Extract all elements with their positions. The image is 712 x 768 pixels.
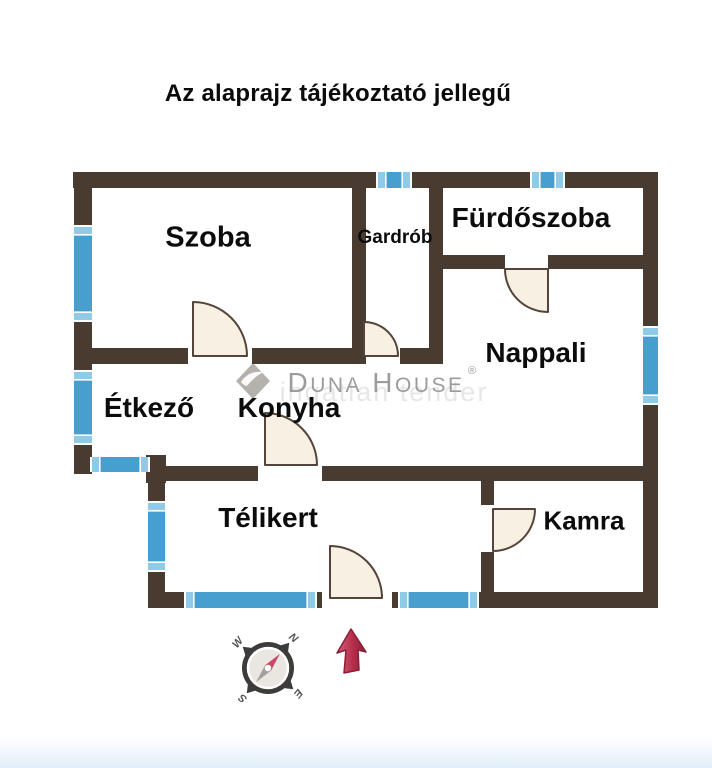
wall-segment (443, 255, 505, 269)
wall-segment (481, 481, 494, 505)
window (74, 225, 92, 322)
north-arrow-icon (337, 629, 366, 673)
window (643, 326, 658, 405)
door-gardrob (364, 322, 398, 356)
room-label-konyha: Konyha (238, 392, 341, 423)
wall-segment (548, 255, 643, 269)
wall-segment (74, 443, 92, 474)
page-bottom-tint (0, 738, 712, 768)
wall-segment (148, 592, 186, 608)
compass-icon: NESW (230, 631, 305, 705)
door-telikert (330, 546, 382, 598)
doors-layer (193, 269, 548, 598)
window (376, 172, 412, 188)
wall-segment (166, 466, 258, 481)
wall-segment (643, 403, 658, 608)
watermark-registered-mark: ® (468, 365, 476, 377)
room-label-nappali: Nappali (485, 337, 586, 368)
room-label-furdoszoba: Fürdőszoba (452, 202, 611, 233)
wall-segment (429, 188, 443, 364)
room-label-telikert: Télikert (218, 502, 318, 533)
wall-segment (74, 172, 92, 227)
room-label-etkezo: Étkező (104, 392, 194, 423)
room-label-gardrob: Gardrób (358, 227, 433, 248)
window (148, 501, 165, 572)
door-kamra (493, 509, 535, 551)
wall-segment (252, 348, 352, 364)
wall-segment (400, 348, 443, 364)
room-label-kamra: Kamra (544, 505, 625, 535)
window (74, 370, 92, 445)
wall-segment (481, 552, 494, 592)
window (398, 592, 479, 608)
door-furdoszoba (505, 269, 548, 312)
compass-pivot (265, 665, 271, 671)
wall-segment (92, 348, 188, 364)
wall-segment (322, 466, 658, 481)
door-szoba (193, 302, 247, 356)
window (184, 592, 317, 608)
wall-segment (74, 320, 92, 372)
window (530, 172, 565, 188)
floorplan-page: Az alaprajz tájékoztató jellegű ingatlan… (0, 0, 712, 768)
wall-segment (477, 592, 658, 608)
wall-segment (410, 172, 532, 188)
window (90, 457, 150, 472)
wall-segment (148, 472, 165, 503)
floorplan-drawing: ingatlan tender DUNA HOUSE ® SzobaGardró… (0, 0, 712, 768)
room-label-szoba: Szoba (165, 221, 251, 253)
wall-segment (643, 172, 658, 328)
wall-segment (73, 172, 378, 188)
